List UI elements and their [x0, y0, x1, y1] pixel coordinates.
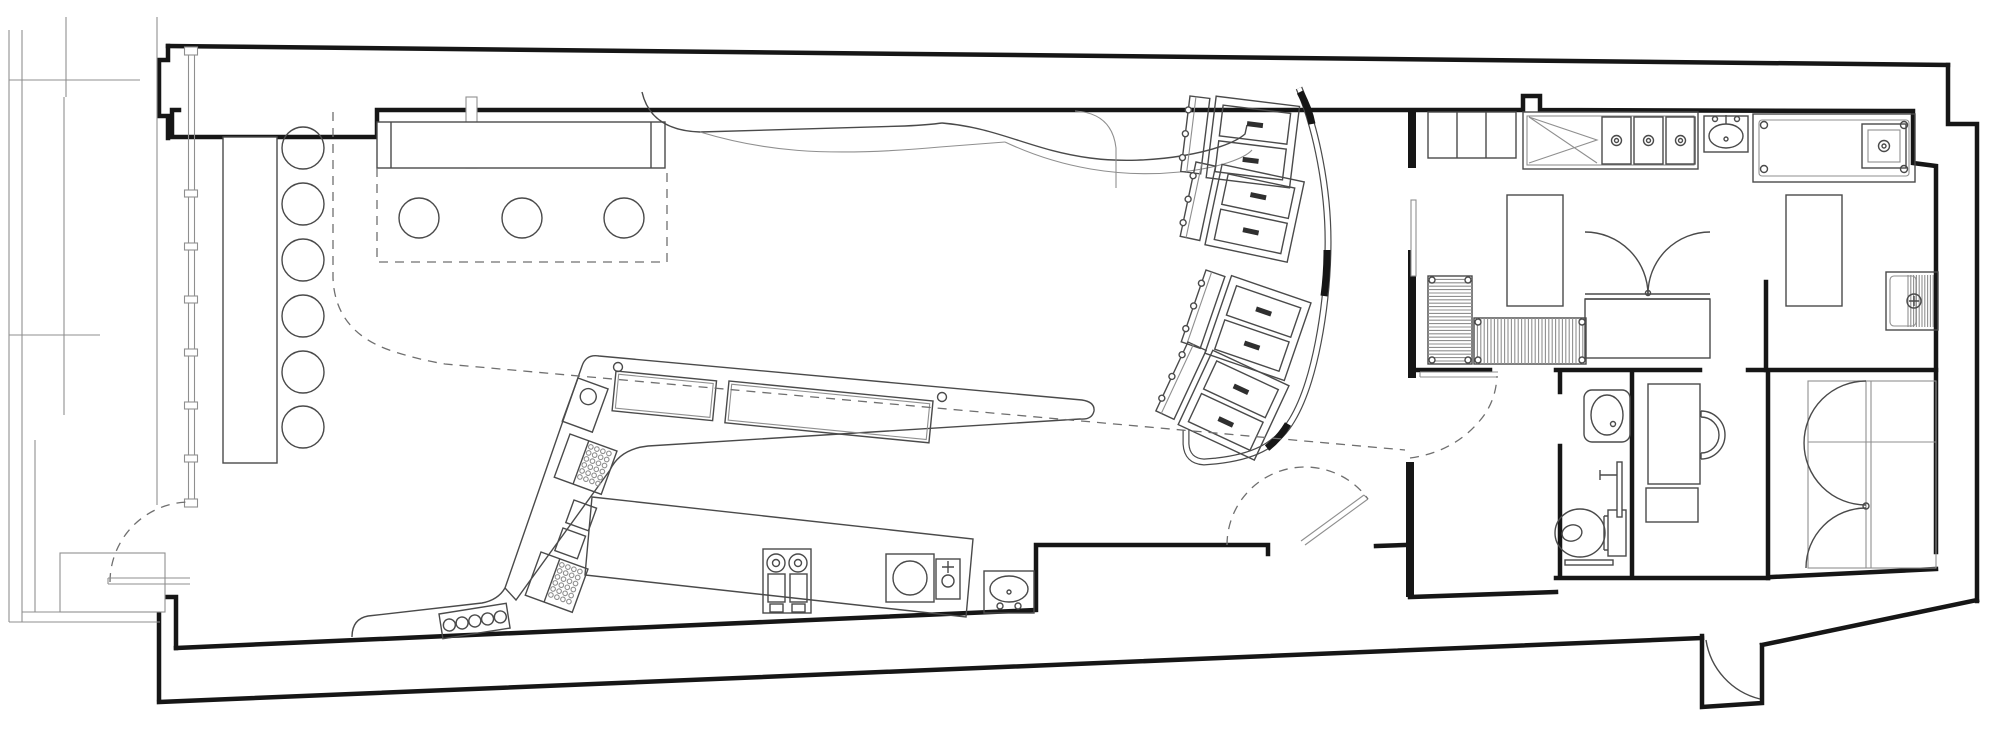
sink-drain	[1612, 136, 1622, 146]
floor-plan-drawing	[0, 0, 2000, 737]
office-cabinet	[1646, 488, 1698, 522]
dry-shelving	[1428, 112, 1516, 158]
table-label-pill	[1217, 416, 1234, 427]
rack-post	[1475, 357, 1481, 363]
window-wall-line	[189, 47, 195, 505]
rack-post	[1579, 357, 1585, 363]
wire-rack	[1474, 318, 1586, 364]
booth-unit	[1177, 266, 1311, 380]
cup-slot	[606, 451, 612, 457]
mullion-cap	[185, 47, 198, 55]
rack-post	[1429, 277, 1435, 283]
bench-knob	[1168, 372, 1176, 380]
banquette-bench	[223, 137, 277, 463]
cup-slot	[558, 582, 564, 588]
counter-plinth-edge	[352, 588, 505, 637]
sink-compartment	[1602, 117, 1631, 164]
restroom-walls	[1556, 372, 1768, 578]
worktable-left	[1507, 195, 1563, 306]
kitchen-partition-wall	[1410, 112, 1412, 597]
rack-post	[1579, 319, 1585, 325]
sink-drain	[1644, 136, 1654, 146]
bench-knob	[1158, 394, 1166, 402]
mullion-tick	[185, 455, 198, 462]
cup-slot	[602, 463, 608, 469]
cup-slot	[552, 580, 558, 586]
rear-vestibule-walls	[1702, 600, 1977, 707]
glass-slot	[455, 616, 469, 630]
banquette-stool	[282, 351, 324, 393]
booth-table	[1205, 276, 1311, 381]
back-equipment-counter	[585, 497, 1034, 617]
storefront-outer-lines	[9, 30, 160, 622]
banquette-stool	[282, 406, 324, 448]
mullion-tick	[185, 190, 198, 197]
banquette-stools	[282, 127, 324, 448]
hand-sink	[1704, 115, 1748, 152]
cup-slot	[587, 464, 593, 470]
espresso-machine	[763, 549, 811, 613]
case-pivot-dot-1	[614, 363, 623, 372]
window-bench-area	[377, 122, 667, 262]
cup-slot	[604, 457, 610, 463]
bench-knob	[1185, 196, 1192, 203]
rack-post	[1465, 357, 1471, 363]
mullion-tick	[185, 296, 198, 303]
cup-slot	[588, 444, 594, 450]
sink-compartment	[1666, 117, 1695, 164]
office-divider-wall	[1766, 282, 1768, 578]
cup-slot	[597, 475, 603, 481]
mullion-tick	[185, 243, 198, 250]
office-desk	[1648, 384, 1700, 484]
bench-knob	[1180, 219, 1187, 226]
cup-slot	[599, 469, 605, 475]
table-label-pill	[1247, 121, 1263, 128]
cup-slot	[590, 458, 596, 464]
cup-slot	[555, 574, 561, 580]
toilet	[1555, 509, 1626, 557]
cup-slot	[570, 587, 576, 593]
cup-slot	[591, 472, 597, 478]
mullion-tick	[185, 402, 198, 409]
drainboard-lines	[1529, 117, 1597, 163]
window-bench	[377, 122, 665, 168]
mop-sink-unit	[1886, 272, 1938, 330]
cup-slot	[565, 564, 571, 570]
sink-drain-center	[1615, 139, 1619, 143]
round-equipment	[886, 554, 934, 602]
wire-rack	[1428, 276, 1472, 364]
banquette-stool	[282, 183, 324, 225]
cup-slot	[567, 578, 573, 584]
canopy-curve-3	[942, 123, 1247, 160]
service-wall-return	[1075, 111, 1116, 188]
cup-slot	[557, 568, 563, 574]
cup-slot	[568, 593, 574, 599]
bench-knob	[1190, 302, 1198, 310]
banquette-stool	[282, 295, 324, 337]
cup-slot	[569, 572, 575, 578]
triple-compartment-sink	[1523, 112, 1698, 169]
table-label-pill	[1233, 384, 1250, 395]
booth-guard-rail-band	[1186, 88, 1328, 462]
cup-slot	[559, 562, 565, 568]
glass-slot	[442, 618, 456, 632]
cup-slot	[581, 462, 587, 468]
table-label-pill	[1242, 157, 1258, 164]
rear-storage-room	[1804, 272, 1938, 568]
mullion-tick	[185, 349, 198, 356]
faucet-unit	[936, 559, 960, 599]
cup-slot	[593, 466, 599, 472]
cup-slot	[556, 588, 562, 594]
rear-exit-door-swing	[1706, 640, 1760, 699]
corridor-bottom-wall	[1410, 569, 1936, 597]
kitchen-platform	[1585, 299, 1710, 358]
corner-closet-doors	[1804, 381, 1936, 568]
mid-door-leaf	[1301, 495, 1368, 545]
window-table	[502, 198, 542, 238]
cup-slot	[550, 586, 556, 592]
window-tables	[399, 198, 644, 238]
cup-slot	[564, 584, 570, 590]
display-case-1	[612, 371, 716, 421]
grab-bar-horizontal	[1565, 560, 1613, 565]
sink-drain-center	[1647, 139, 1651, 143]
bench-knob	[1185, 107, 1192, 114]
bottom-wall-inner	[176, 545, 1406, 648]
cup-slot	[595, 481, 601, 487]
table-label-pill	[1255, 307, 1272, 317]
cup-slot	[589, 478, 595, 484]
cup-slot	[575, 575, 581, 581]
booth-rail-solid-segment-2	[1324, 250, 1327, 296]
closet-door-arc-upper	[1804, 381, 1866, 505]
bench-knob	[1190, 172, 1197, 179]
glass-slot	[493, 610, 507, 624]
cup-slot	[560, 596, 566, 602]
cup-slot	[573, 581, 579, 587]
rack-post	[1429, 357, 1435, 363]
open-door-leaf-against-wall	[1420, 372, 1498, 377]
table-label-pill	[1250, 192, 1267, 200]
glass-slot	[481, 612, 495, 626]
counter-hand-sink	[984, 571, 1034, 613]
cup-slot	[561, 576, 567, 582]
prep-table-with-sink	[1753, 114, 1915, 182]
storefront-post-lines	[64, 17, 157, 505]
interior-doors	[1227, 467, 1760, 699]
restroom-sink	[1584, 390, 1630, 442]
cup-slot	[571, 566, 577, 572]
corridor-door-swing-arc	[1410, 376, 1497, 458]
booth-guard-rail-core	[1186, 88, 1328, 462]
top-wall-outer	[168, 46, 1948, 65]
bench-knob	[1179, 154, 1186, 161]
cup-rack	[554, 434, 617, 494]
glass-slot	[468, 614, 482, 628]
table-label-pill	[1242, 227, 1259, 235]
shelving-dividers	[1457, 112, 1486, 158]
left-wall-outer	[159, 46, 168, 138]
table-bolt	[1761, 122, 1768, 129]
cup-slot	[577, 474, 583, 480]
cup-slot	[592, 452, 598, 458]
service-counter	[352, 356, 1094, 639]
sink-compartment	[1634, 117, 1663, 164]
equipment-counter-outline	[585, 497, 973, 617]
banquette-area	[223, 127, 324, 463]
booth-unit	[1177, 158, 1305, 262]
right-wall-outer	[1948, 65, 1977, 601]
cup-slot	[577, 569, 583, 575]
counter-equipment	[555, 528, 586, 559]
sink-compartments	[1602, 117, 1695, 164]
cup-slot	[563, 570, 569, 576]
canopy-curve-2	[700, 132, 1005, 152]
cup-slot	[562, 590, 568, 596]
cup-slot	[600, 448, 606, 454]
booth-seating-area	[1152, 88, 1328, 462]
mid-door-swing-arc	[1227, 467, 1368, 545]
curved-canopy-feature	[642, 92, 1252, 188]
cup-slot	[584, 456, 590, 462]
cup-slot	[548, 592, 554, 598]
cup-slot	[586, 450, 592, 456]
display-case-2	[725, 381, 933, 443]
grab-bar-bracket	[1600, 470, 1617, 480]
table-bolt	[1761, 166, 1768, 173]
window-table	[399, 198, 439, 238]
bench-knob	[1182, 325, 1190, 333]
rack-post	[1465, 277, 1471, 283]
bench-knob	[1182, 130, 1189, 137]
floor-plan-page	[0, 0, 2000, 737]
cup-rack	[525, 552, 588, 612]
window-table	[604, 198, 644, 238]
cup-slot	[598, 454, 604, 460]
sink-drain-center	[1679, 139, 1683, 143]
brewer-dial	[578, 386, 599, 407]
banquette-stool	[282, 239, 324, 281]
cup-slot	[566, 599, 572, 605]
cup-slot	[596, 460, 602, 466]
office	[1646, 384, 1725, 522]
bench-knob	[1198, 279, 1206, 287]
window-mullion-ticks	[185, 47, 198, 507]
kitchen-double-doors	[1585, 232, 1710, 358]
wall-rail-rod	[1411, 200, 1416, 276]
worktable-right	[1786, 195, 1842, 306]
kitchen-area	[1411, 112, 1915, 377]
table-zone-dashed-outline	[377, 168, 667, 262]
bench-knob	[1178, 351, 1186, 359]
cup-slot	[579, 468, 585, 474]
cup-slot	[594, 446, 600, 452]
restroom	[1555, 390, 1630, 565]
cup-slot	[554, 594, 560, 600]
booth-units	[1152, 93, 1311, 460]
rack-post	[1475, 319, 1481, 325]
closet-door-arc-lower	[1806, 508, 1866, 568]
cup-slot	[585, 470, 591, 476]
grab-bar-vertical	[1617, 462, 1622, 517]
sink-drain	[1676, 136, 1686, 146]
office-chair	[1701, 411, 1725, 459]
case-pivot-dot-2	[938, 393, 947, 402]
cup-slot	[583, 476, 589, 482]
table-label-pill	[1244, 341, 1261, 351]
banquette-stool	[282, 127, 324, 169]
mullion-cap	[185, 499, 198, 507]
